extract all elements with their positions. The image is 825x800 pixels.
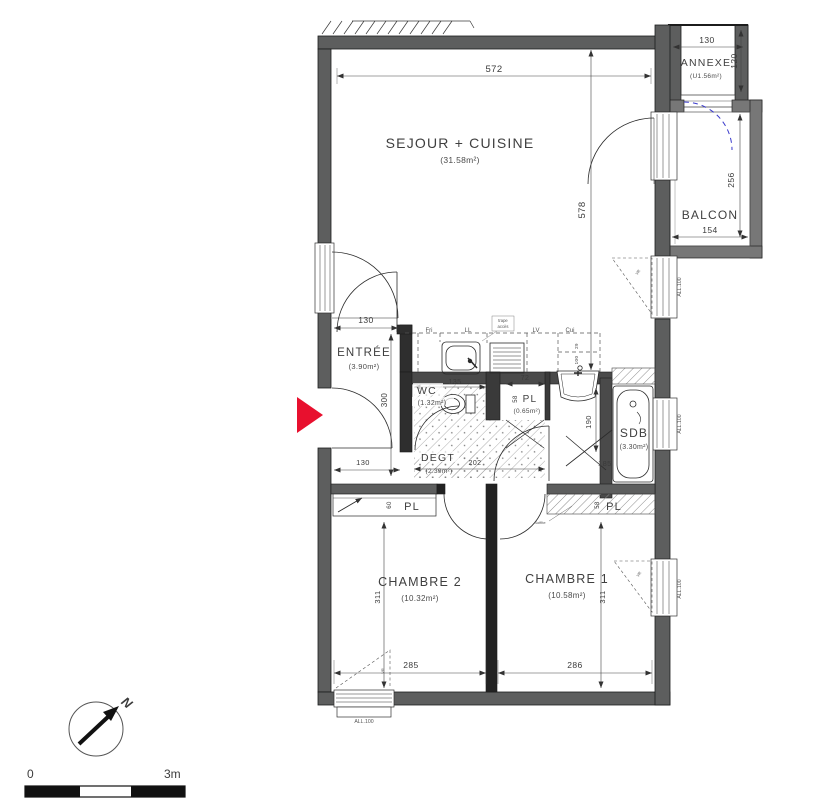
annexe-door-swing [684,102,732,150]
sill-label-chambre2: ALL.100 [354,719,373,725]
vr-triangle-chambre1 [614,561,652,612]
room-label-degt: DEGT [421,452,455,464]
room-area-pl-sdb: (0.65m²) [514,408,541,415]
sill-label-sejour: ALL.100 [677,277,683,296]
room-label-wc: WC [417,385,437,397]
dim-entree-depth: 300 [380,393,389,408]
kitchen-hatch-note-line1: trape [498,318,508,323]
floor-plan-drawing: SEJOUR + CUISINE (31.58m²) ANNEXE (U1.56… [0,0,825,800]
sill-label-sdb: ALL.100 [677,414,683,433]
room-area-sdb: (3.30m²) [620,444,649,451]
closet-rod-icon [333,494,436,516]
kitchen-sink-icon [442,342,480,374]
window-sdb [651,398,677,450]
chambre1-door-swing [500,494,545,539]
room-label-pl-sdb: PL [523,394,538,405]
dim-degt-width: 202 [469,460,482,467]
kitchen-units [405,333,600,372]
pl-ch1-soffit-hatch [547,494,655,514]
room-label-chambre1: CHAMBRE 1 [525,572,609,586]
dim-chambre2-depth: 311 [373,590,382,603]
window-chambre1 [651,559,677,616]
scale-end-label: 3m [164,767,181,781]
kitchen-fridge-label: Fri [426,328,433,334]
gas-outlet-icon [578,366,582,370]
bath-soffit-hatch [612,368,655,384]
scale-bar: 0 3m [25,767,185,797]
window-sejour-right [651,256,677,318]
dimension-lines [334,30,748,688]
dim-cuisine-2: 100 [574,356,579,365]
north-compass: N [69,694,136,756]
dim-chambre2-width: 285 [403,660,418,670]
floor-plan-page: SEJOUR + CUISINE (31.58m²) ANNEXE (U1.56… [0,0,825,800]
balcon-door-swing [588,118,654,184]
dim-chambre1-depth: 311 [598,590,607,603]
window-sejour-left [315,243,334,313]
dim-annexe-depth: 120 [729,53,739,68]
room-area-wc: (1.32m²) [418,400,447,407]
shutter-label-chambre1: VR [635,570,642,578]
kitchen-washer-label: LL [465,328,472,334]
compass-north-label: N [118,694,135,712]
window-chambre2-bottom [334,690,394,717]
window-balcon-door [651,112,677,180]
room-label-annexe: ANNEXE [681,57,731,69]
room-area-degt: (2.39m²) [426,468,453,475]
room-label-pl-ch1: PL [606,501,622,513]
dim-cuisine-1: 29 [574,343,579,349]
vr-triangle-sejour [612,258,652,314]
room-label-pl-ch2: PL [404,501,420,513]
room-area-entree: (3.90m²) [349,362,380,371]
dim-hall-width: 130 [356,458,370,467]
washbasin-icon [557,371,599,401]
dim-balcon-depth: 256 [726,172,736,187]
dim-balcon-width: 154 [702,225,717,235]
dishwasher-icon [490,343,524,373]
dim-bain-width: 185 [598,459,612,468]
dim-pl-ch1-depth: 58 [595,501,601,509]
shutter-label-chambre2: VR [380,668,385,674]
room-label-entree: ENTRÉE [337,346,391,359]
party-wall-hatch [322,21,474,34]
dim-chambre1-width: 286 [567,660,582,670]
room-label-chambre2: CHAMBRE 2 [378,575,462,589]
dim-entree-width: 130 [358,315,373,325]
dim-bain-depth: 190 [584,415,593,429]
dim-wc-width: 135 [449,379,462,386]
dim-annexe-width: 130 [699,35,714,45]
dim-sejour-width: 572 [485,64,502,75]
room-label-balcon: BALCON [682,208,739,222]
kitchen-hatch-note-line2: accès [498,324,509,329]
room-label-sejour: SEJOUR + CUISINE [386,135,535,151]
sill-label-chambre1: ALL.100 [677,579,683,598]
kitchen-cooker-label: Cui [565,328,574,334]
shutter-label-sejour: VR [634,268,641,276]
entrance-arrow-icon [297,397,323,433]
soffit-label: Soffite [534,520,546,525]
dim-pl-depth: 58 [513,395,519,403]
scale-start-label: 0 [27,767,34,781]
dim-pl-width: 72 [521,375,530,382]
kitchen-dishwasher-label: LV [533,328,540,334]
dim-sejour-depth: 578 [577,201,588,218]
dim-pl-ch2-depth: 60 [387,501,393,509]
room-area-annexe: (U1.56m²) [690,73,722,80]
room-label-sdb: SDB [620,426,648,440]
room-area-chambre2: (10.32m²) [401,594,438,603]
room-area-sejour: (31.58m²) [440,155,480,165]
room-area-chambre1: (10.58m²) [548,591,585,600]
chambre2-door-swing [444,494,489,539]
